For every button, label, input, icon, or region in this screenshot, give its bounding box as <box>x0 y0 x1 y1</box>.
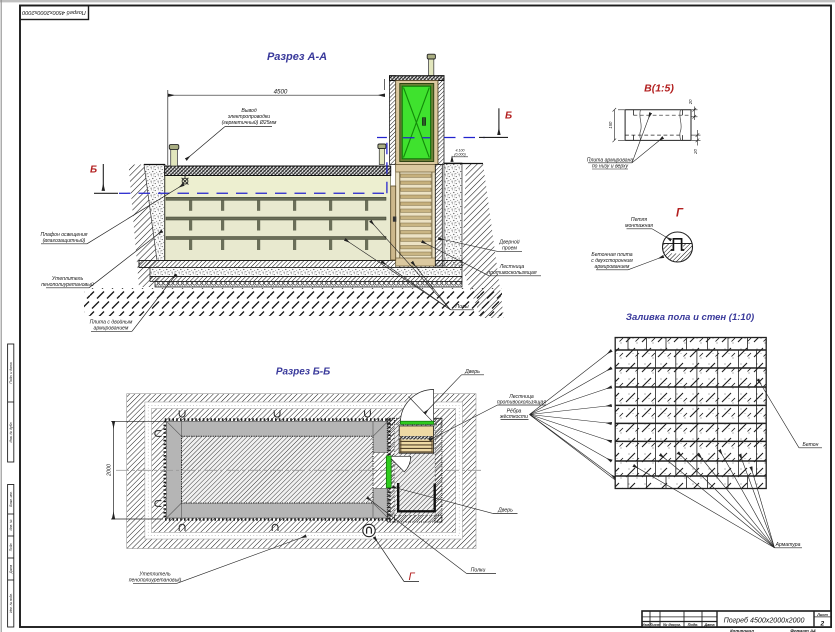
svg-text:Б: Б <box>505 111 512 122</box>
svg-text:150: 150 <box>608 121 613 129</box>
svg-text:Дверной: Дверной <box>498 239 519 246</box>
svg-text:противоскользящая: противоскользящая <box>497 399 546 405</box>
svg-text:Разрез Б-Б: Разрез Б-Б <box>276 367 330 378</box>
svg-text:(влагозащитный): (влагозащитный) <box>43 237 86 244</box>
svg-text:Разрез А-А: Разрез А-А <box>267 51 327 63</box>
svg-text:Дата: Дата <box>9 565 13 575</box>
svg-text:2: 2 <box>819 620 824 627</box>
svg-text:(0.000): (0.000) <box>454 153 465 157</box>
svg-text:Копировал: Копировал <box>730 628 754 632</box>
svg-text:Арматура: Арматура <box>775 542 801 548</box>
svg-text:Дверь: Дверь <box>497 507 513 513</box>
svg-text:по низу и верху: по низу и верху <box>592 164 629 170</box>
svg-text:Лист: Лист <box>816 613 828 617</box>
svg-text:Полки: Полки <box>471 567 486 573</box>
svg-text:пенополиуретановый: пенополиуретановый <box>129 577 182 584</box>
svg-text:Б: Б <box>90 165 97 176</box>
svg-text:Дата: Дата <box>703 623 714 627</box>
svg-text:монтажная: монтажная <box>625 223 653 229</box>
svg-text:Взам. инв.: Взам. инв. <box>9 491 13 506</box>
svg-text:2000: 2000 <box>107 464 113 477</box>
svg-text:Заливка пола и стен (1:10): Заливка пола и стен (1:10) <box>626 312 754 323</box>
svg-text:Плита с двойным: Плита с двойным <box>90 319 133 326</box>
svg-text:Подп. и дата: Подп. и дата <box>9 362 13 383</box>
svg-text:Лист: Лист <box>649 623 661 627</box>
svg-text:армированием: армированием <box>595 264 630 270</box>
svg-text:противоскользящая: противоскользящая <box>487 270 536 276</box>
svg-text:Полы: Полы <box>455 304 468 310</box>
svg-text:проем: проем <box>502 246 517 252</box>
svg-text:(герметичный) Ø25мм: (герметичный) Ø25мм <box>222 119 277 126</box>
svg-text:Инв. № дубл.: Инв. № дубл. <box>9 422 13 443</box>
svg-text:Погреб 4500х2000х2000: Погреб 4500х2000х2000 <box>21 9 86 15</box>
svg-text:Инв. № подл.: Инв. № подл. <box>9 593 13 613</box>
svg-text:Подп.: Подп. <box>9 543 13 552</box>
svg-text:Подп.: Подп. <box>688 623 699 627</box>
svg-text:Г: Г <box>676 208 684 220</box>
svg-text:жёсткости: жёсткости <box>499 414 528 420</box>
svg-text:Инв. №: Инв. № <box>9 519 13 530</box>
svg-text:пенополиуретановый: пенополиуретановый <box>41 281 94 288</box>
svg-text:Бетон: Бетон <box>803 442 819 448</box>
svg-text:Погреб 4500х2000х2000: Погреб 4500х2000х2000 <box>724 616 805 624</box>
svg-text:4500: 4500 <box>274 89 288 96</box>
svg-text:армированием: армированием <box>94 326 129 332</box>
svg-text:20: 20 <box>688 99 693 105</box>
svg-text:В(1:5): В(1:5) <box>644 83 674 95</box>
svg-text:Дверь: Дверь <box>464 369 480 375</box>
svg-text:20: 20 <box>693 149 698 155</box>
svg-text:Формат А4: Формат А4 <box>790 628 816 632</box>
svg-text:№ докум.: № докум. <box>663 623 681 627</box>
